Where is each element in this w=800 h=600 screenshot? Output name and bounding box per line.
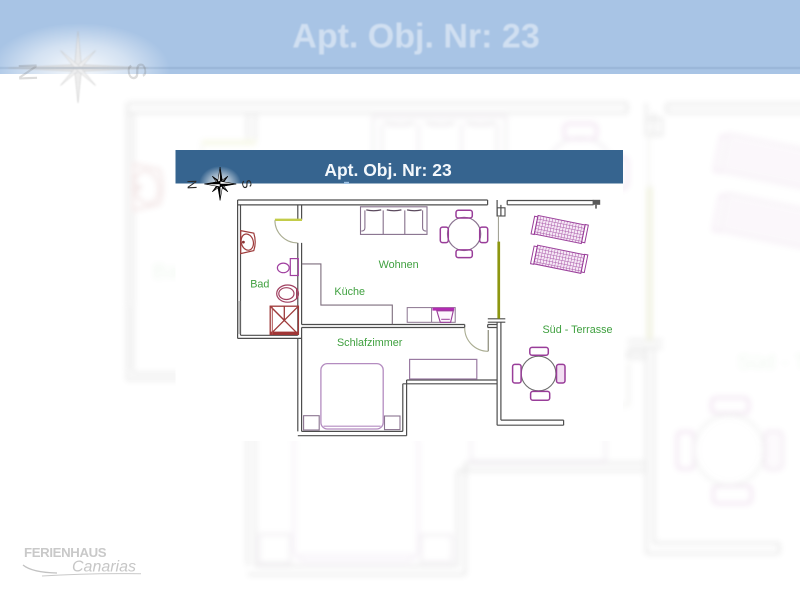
svg-text:Apt. Obj. Nr: 23: Apt. Obj. Nr: 23: [324, 160, 452, 180]
svg-text:N: N: [13, 62, 44, 82]
svg-text:N: N: [184, 180, 199, 190]
svg-text:Apt. Obj. Nr: 23: Apt. Obj. Nr: 23: [292, 18, 539, 56]
svg-text:Canarias: Canarias: [72, 559, 136, 576]
